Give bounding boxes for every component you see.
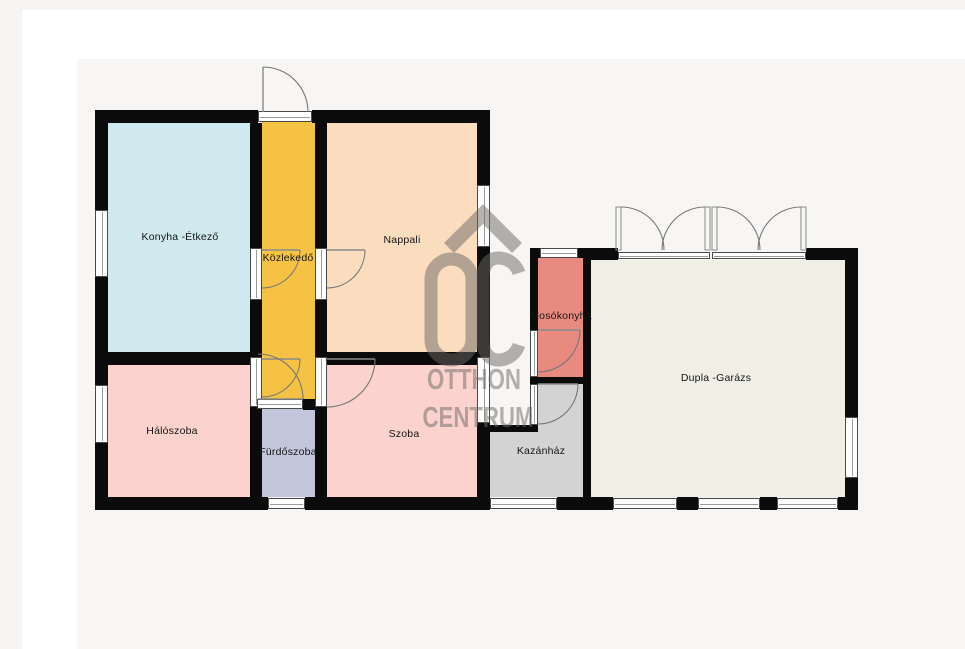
- room-label-haloszoba: Hálószoba: [146, 425, 197, 437]
- wall: [95, 497, 268, 510]
- wall: [95, 110, 108, 210]
- window: [540, 248, 578, 258]
- door-sill-entrance: [258, 111, 312, 122]
- floorplan-page: { "plan": { "title": "Floor plan", "room…: [0, 0, 965, 649]
- room-label-furdoszoba: Fürdőszoba: [259, 446, 316, 458]
- wall: [250, 300, 262, 357]
- room-label-kozlekedo: Közlekedő: [263, 252, 314, 264]
- wall: [95, 352, 250, 365]
- garage-door-sill: [618, 252, 710, 259]
- wall: [760, 497, 777, 510]
- window: [777, 498, 838, 509]
- wall: [477, 247, 490, 357]
- wall: [845, 248, 858, 417]
- window: [477, 185, 490, 247]
- window: [845, 417, 858, 478]
- wall: [557, 497, 613, 510]
- window: [613, 498, 677, 509]
- window: [95, 385, 108, 443]
- room-label-garazs: Dupla -Garázs: [681, 372, 751, 384]
- room-label-mosokonyha: Mosókonyha: [530, 310, 592, 322]
- wall: [315, 123, 327, 248]
- room-kazanhaz: [490, 432, 583, 497]
- garage-door-sill: [712, 252, 806, 259]
- window: [268, 498, 305, 509]
- door-frame: [315, 248, 327, 300]
- room-label-szoba: Szoba: [389, 428, 420, 440]
- wall: [477, 425, 538, 432]
- door-frame: [257, 399, 303, 409]
- wall: [312, 110, 490, 123]
- wall: [477, 423, 490, 510]
- wall: [305, 497, 490, 510]
- wall: [838, 497, 858, 510]
- window: [95, 210, 108, 277]
- wall: [95, 277, 108, 385]
- room-label-kazanhaz: Kazánház: [517, 445, 565, 457]
- door-frame: [315, 357, 327, 407]
- door-frame: [530, 330, 538, 377]
- door-frame: [250, 248, 262, 300]
- window: [698, 498, 760, 509]
- wall: [677, 497, 698, 510]
- wall: [250, 123, 262, 248]
- wall: [806, 248, 845, 260]
- wall: [530, 377, 585, 384]
- wall: [477, 110, 490, 185]
- room-kazanhaz-upper: [538, 384, 583, 432]
- wall: [315, 352, 477, 365]
- door-frame: [530, 384, 538, 425]
- wall: [315, 407, 327, 497]
- room-label-konyha: Konyha -Étkező: [142, 231, 219, 243]
- window: [490, 498, 557, 509]
- wall: [583, 248, 591, 510]
- window: [477, 357, 490, 423]
- wall: [315, 300, 327, 357]
- wall: [95, 110, 258, 123]
- wall: [583, 248, 618, 260]
- room-label-nappali: Nappali: [383, 234, 420, 246]
